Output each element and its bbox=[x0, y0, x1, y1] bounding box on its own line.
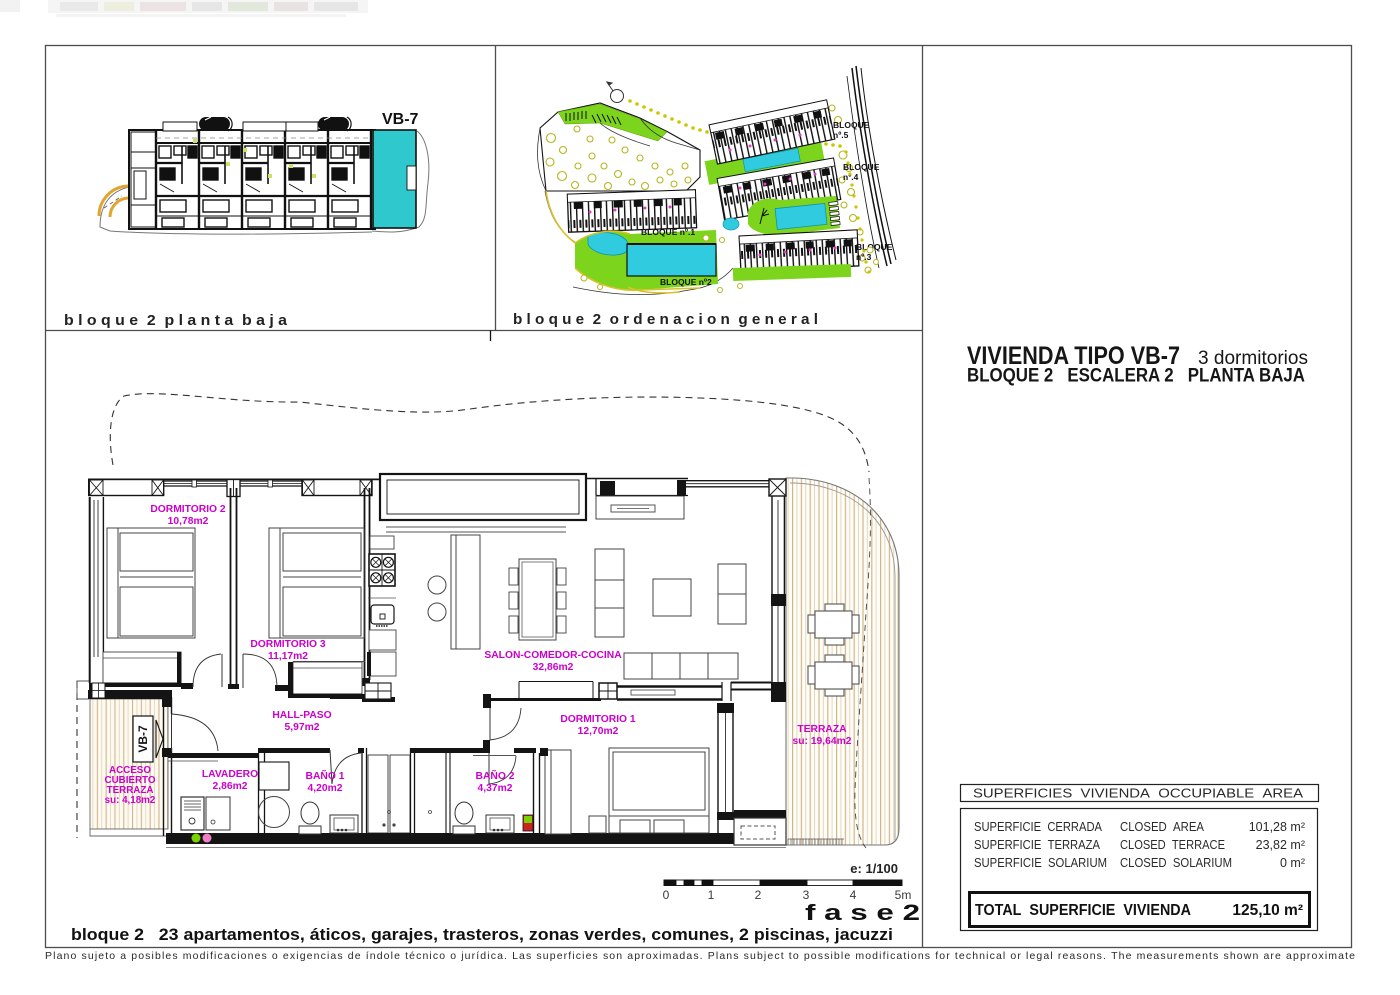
svg-text:DORMITORIO 2: DORMITORIO 2 bbox=[150, 504, 226, 515]
svg-text:su: 4,18m2: su: 4,18m2 bbox=[105, 795, 156, 806]
svg-text:DORMITORIO 3: DORMITORIO 3 bbox=[250, 639, 326, 650]
svg-text:2: 2 bbox=[755, 888, 762, 902]
svg-text:BLOQUE: BLOQUE bbox=[856, 242, 893, 252]
svg-text:0 m²: 0 m² bbox=[1280, 856, 1305, 870]
svg-text:2,86m2: 2,86m2 bbox=[213, 781, 248, 792]
svg-text:32,86m2: 32,86m2 bbox=[533, 662, 574, 673]
svg-text:e: 1/100: e: 1/100 bbox=[850, 861, 898, 876]
svg-text:b l o q u e 2 o r d e n a c: b l o q u e 2 o r d e n a c i o n g e n … bbox=[513, 311, 818, 328]
svg-text:HALL-PASO: HALL-PASO bbox=[272, 710, 331, 721]
svg-text:5,97m2: 5,97m2 bbox=[285, 722, 320, 733]
svg-text:Plano sujeto a posibles modifi: Plano sujeto a posibles modificaciones o… bbox=[45, 950, 1355, 962]
svg-text:BAÑO 1: BAÑO 1 bbox=[306, 769, 345, 782]
svg-text:10,78m2: 10,78m2 bbox=[168, 516, 209, 527]
svg-text:VB-7: VB-7 bbox=[382, 111, 419, 128]
svg-text:125,10 m²: 125,10 m² bbox=[1232, 902, 1303, 919]
svg-text:CLOSED TERRACE: CLOSED TERRACE bbox=[1120, 838, 1225, 852]
svg-text:DORMITORIO 1: DORMITORIO 1 bbox=[560, 714, 636, 725]
svg-text:SUPERFICIES VIVIENDA OCCUPIA: SUPERFICIES VIVIENDA OCCUPIABLE AREA bbox=[973, 787, 1304, 801]
svg-text:BLOQUE nº.1: BLOQUE nº.1 bbox=[641, 227, 695, 237]
svg-text:CLOSED AREA: CLOSED AREA bbox=[1120, 820, 1205, 834]
svg-text:nº.5: nº.5 bbox=[833, 130, 849, 140]
svg-text:SALON-COMEDOR-COCINA: SALON-COMEDOR-COCINA bbox=[484, 650, 622, 661]
svg-text:SUPERFICIE CERRADA: SUPERFICIE CERRADA bbox=[974, 820, 1103, 834]
svg-text:BLOQUE: BLOQUE bbox=[833, 120, 870, 130]
svg-text:BAÑO 2: BAÑO 2 bbox=[476, 769, 515, 782]
svg-text:4,37m2: 4,37m2 bbox=[478, 783, 513, 794]
svg-text:VB-7: VB-7 bbox=[136, 725, 150, 753]
svg-text:bloque 2 23 apartamentos, át: bloque 2 23 apartamentos, áticos, garaje… bbox=[71, 926, 893, 944]
svg-text:su: 19,64m2: su: 19,64m2 bbox=[793, 736, 852, 747]
svg-text:LAVADERO: LAVADERO bbox=[202, 769, 258, 780]
svg-text:TERRAZA: TERRAZA bbox=[797, 724, 847, 735]
svg-text:11,17m2: 11,17m2 bbox=[268, 651, 308, 662]
svg-text:BLOQUE 2 ESCALERA 2 PLANTA: BLOQUE 2 ESCALERA 2 PLANTA BAJA bbox=[967, 366, 1305, 387]
svg-text:SUPERFICIE TERRAZA: SUPERFICIE TERRAZA bbox=[974, 838, 1101, 852]
svg-text:SUPERFICIE SOLARIUM: SUPERFICIE SOLARIUM bbox=[974, 856, 1107, 870]
svg-text:TOTAL SUPERFICIE VIVIENDA: TOTAL SUPERFICIE VIVIENDA bbox=[975, 902, 1191, 919]
svg-text:4,20m2: 4,20m2 bbox=[308, 783, 343, 794]
svg-text:b l o q u e 2 p l a n t a b: b l o q u e 2 p l a n t a b a j a bbox=[64, 312, 288, 329]
svg-text:f a s e 2: f a s e 2 bbox=[805, 900, 920, 925]
svg-text:nº.3: nº.3 bbox=[856, 252, 872, 262]
svg-text:BLOQUE nº2: BLOQUE nº2 bbox=[660, 277, 712, 287]
svg-text:12,70m2: 12,70m2 bbox=[578, 726, 619, 737]
svg-text:101,28 m²: 101,28 m² bbox=[1249, 820, 1305, 834]
svg-text:23,82 m²: 23,82 m² bbox=[1256, 838, 1305, 852]
svg-text:1: 1 bbox=[708, 888, 715, 902]
svg-text:0: 0 bbox=[663, 888, 670, 902]
svg-text:CLOSED SOLARIUM: CLOSED SOLARIUM bbox=[1120, 856, 1232, 870]
